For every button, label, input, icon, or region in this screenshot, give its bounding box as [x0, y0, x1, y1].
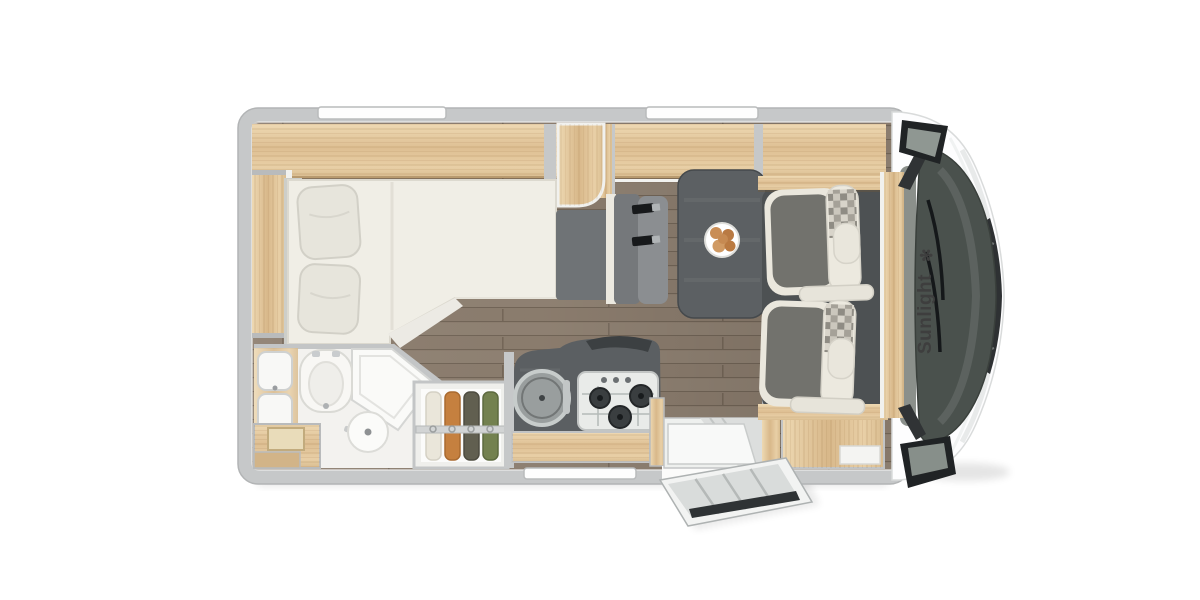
floorplan-canvas: Sunlight ✻	[0, 0, 1200, 600]
brand-logo-icon: ✻	[919, 248, 936, 262]
kitchen-drawer-front	[512, 432, 650, 462]
kitchen-end-panel	[650, 398, 664, 466]
armrest	[790, 397, 864, 415]
armrest	[799, 284, 873, 302]
kitchen-sink	[515, 371, 570, 425]
passenger-seat	[758, 298, 868, 415]
headrest	[828, 338, 855, 379]
toilet	[300, 350, 352, 412]
motorhome-floorplan: Sunlight ✻	[0, 0, 1200, 600]
food-plate	[705, 223, 739, 257]
faucet	[563, 380, 570, 414]
stove	[578, 372, 658, 430]
pillow-top	[296, 184, 361, 260]
wardrobe	[414, 382, 508, 468]
shower-door-panel	[258, 352, 292, 390]
cab-seating	[758, 172, 904, 420]
driver-seat	[764, 185, 874, 304]
window-slit-top-left	[318, 107, 446, 119]
entry-step	[664, 418, 762, 468]
headrest	[833, 223, 860, 264]
brand-wordmark: Sunlight	[915, 274, 936, 354]
window-slit-bottom	[524, 468, 636, 479]
kitchen	[504, 336, 664, 468]
travel-bench	[606, 194, 668, 304]
vanity	[254, 424, 320, 468]
pillow-bottom	[297, 263, 360, 334]
window-slit-top-right	[646, 107, 758, 119]
vanity-sink	[268, 428, 304, 450]
vehicle: Sunlight ✻	[238, 107, 1004, 526]
